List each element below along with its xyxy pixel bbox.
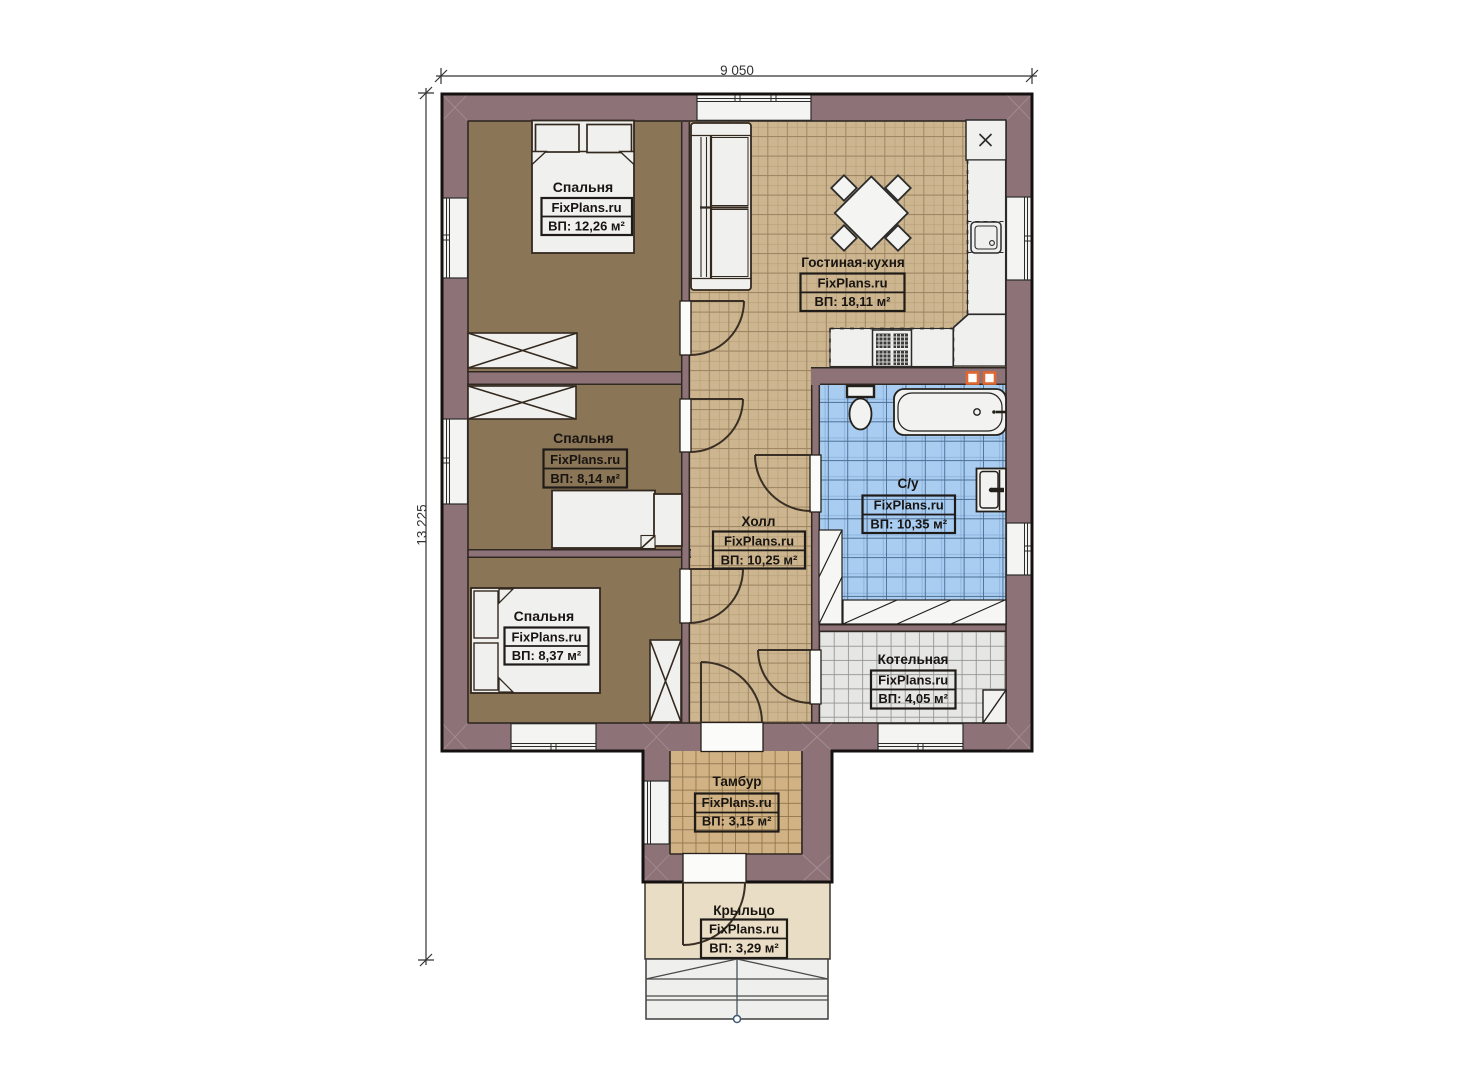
svg-text:FixPlans.ru: FixPlans.ru (709, 922, 779, 937)
svg-text:Спальня: Спальня (553, 179, 613, 195)
svg-text:Спальня: Спальня (514, 608, 574, 624)
svg-text:ВП: 12,26 м²: ВП: 12,26 м² (548, 219, 625, 234)
svg-text:FixPlans.ru: FixPlans.ru (874, 498, 944, 513)
svg-text:FixPlans.ru: FixPlans.ru (817, 276, 887, 291)
svg-text:ВП: 4,05 м²: ВП: 4,05 м² (878, 691, 948, 706)
svg-text:FixPlans.ru: FixPlans.ru (550, 452, 620, 467)
svg-text:С/у: С/у (897, 476, 919, 491)
svg-text:FixPlans.ru: FixPlans.ru (551, 200, 621, 215)
svg-text:ВП: 8,37 м²: ВП: 8,37 м² (512, 648, 582, 663)
svg-text:ВП: 18,11 м²: ВП: 18,11 м² (814, 294, 891, 309)
svg-text:FixPlans.ru: FixPlans.ru (702, 795, 772, 810)
svg-text:ВП: 10,25 м²: ВП: 10,25 м² (721, 553, 798, 568)
svg-text:Котельная: Котельная (878, 652, 949, 667)
svg-text:Тамбур: Тамбур (713, 774, 762, 789)
svg-text:Гостиная-кухня: Гостиная-кухня (801, 255, 904, 270)
svg-text:ВП: 3,15 м²: ВП: 3,15 м² (702, 814, 772, 829)
svg-text:ВП: 10,35 м²: ВП: 10,35 м² (870, 517, 947, 532)
svg-text:9 050: 9 050 (720, 63, 754, 78)
svg-text:Холл: Холл (742, 514, 776, 529)
svg-text:Крыльцо: Крыльцо (713, 903, 774, 918)
svg-text:FixPlans.ru: FixPlans.ru (511, 630, 581, 645)
svg-text:Спальня: Спальня (553, 430, 613, 446)
svg-text:ВП: 3,29 м²: ВП: 3,29 м² (709, 941, 779, 956)
svg-text:FixPlans.ru: FixPlans.ru (724, 534, 794, 549)
svg-text:13 225: 13 225 (415, 504, 430, 545)
svg-text:FixPlans.ru: FixPlans.ru (878, 673, 948, 688)
svg-text:ВП: 8,14 м²: ВП: 8,14 м² (550, 471, 620, 486)
